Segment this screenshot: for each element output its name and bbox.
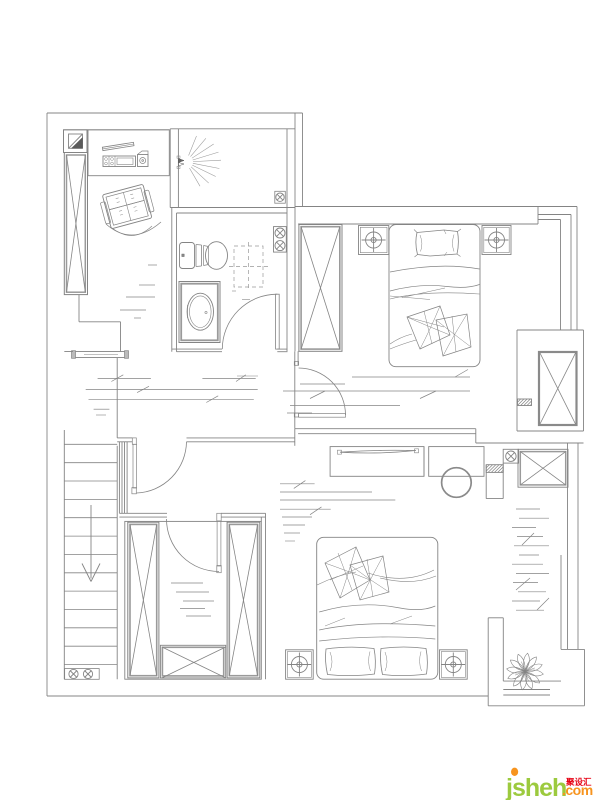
svg-text:聚设汇: 聚设汇 xyxy=(565,777,592,787)
svg-text:jsheh: jsheh xyxy=(505,774,566,800)
